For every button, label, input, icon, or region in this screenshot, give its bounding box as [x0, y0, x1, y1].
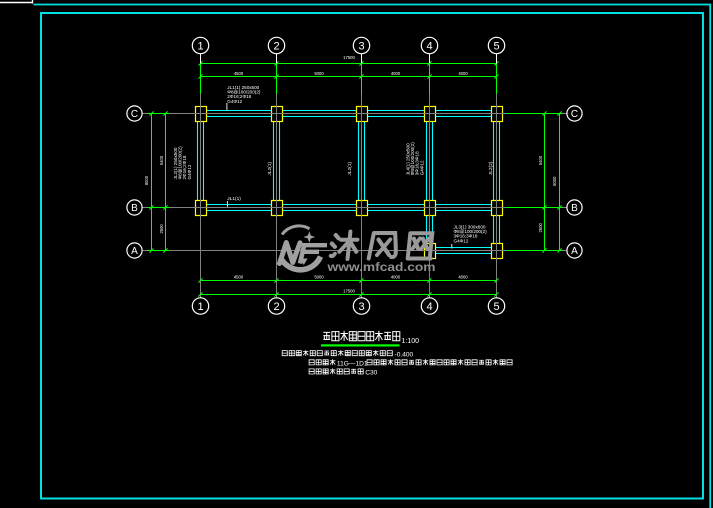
svg-text:4500: 4500 [234, 275, 244, 280]
svg-text:4000: 4000 [391, 71, 401, 76]
svg-text:B: B [571, 203, 578, 214]
svg-text:www.mfcad.com: www.mfcad.com [326, 260, 435, 274]
svg-text:4000: 4000 [458, 275, 468, 280]
svg-text:C: C [571, 109, 578, 120]
svg-text:11G—1D1: 11G—1D1 [337, 361, 368, 368]
svg-text:JL2(2): JL2(2) [488, 161, 494, 175]
svg-text:4: 4 [426, 41, 432, 53]
svg-text:1: 1 [197, 301, 203, 313]
svg-text:JL2(1): JL2(1) [267, 162, 273, 176]
svg-text:2600: 2600 [159, 224, 164, 234]
svg-text:3: 3 [358, 41, 364, 53]
svg-text:5400: 5400 [538, 155, 543, 165]
svg-text:4: 4 [426, 301, 432, 313]
svg-text:5400: 5400 [159, 155, 164, 165]
svg-text:B: B [131, 203, 138, 214]
svg-text:G4Φ12: G4Φ12 [419, 160, 424, 175]
svg-text:2: 2 [273, 301, 279, 313]
svg-text:2600: 2600 [538, 222, 543, 232]
svg-text:A: A [571, 246, 578, 257]
svg-text:5: 5 [493, 301, 499, 313]
svg-text:8000: 8000 [144, 175, 149, 185]
svg-text:2: 2 [273, 41, 279, 53]
svg-text:JL1(1): JL1(1) [227, 196, 241, 202]
svg-text:G4Φ12: G4Φ12 [454, 238, 469, 243]
svg-text:3: 3 [358, 301, 364, 313]
svg-text:C30: C30 [365, 370, 377, 377]
svg-text:1:100: 1:100 [402, 338, 420, 345]
svg-text:4000: 4000 [391, 275, 401, 280]
svg-text:8000: 8000 [552, 176, 557, 186]
svg-text:G4Φ12: G4Φ12 [227, 99, 242, 104]
svg-text:G4Φ12: G4Φ12 [187, 164, 192, 179]
svg-text:4000: 4000 [458, 71, 468, 76]
svg-text:JL2(1): JL2(1) [347, 162, 353, 176]
svg-text:1: 1 [197, 41, 203, 53]
svg-text:17500: 17500 [343, 55, 355, 60]
svg-text:5: 5 [493, 41, 499, 53]
svg-text:A: A [131, 246, 138, 257]
svg-text:C: C [131, 109, 138, 120]
svg-text:5000: 5000 [314, 71, 324, 76]
svg-text:17500: 17500 [343, 288, 355, 293]
svg-text:-0.400: -0.400 [395, 351, 414, 358]
svg-text:5000: 5000 [314, 275, 324, 280]
svg-text:4500: 4500 [234, 71, 244, 76]
